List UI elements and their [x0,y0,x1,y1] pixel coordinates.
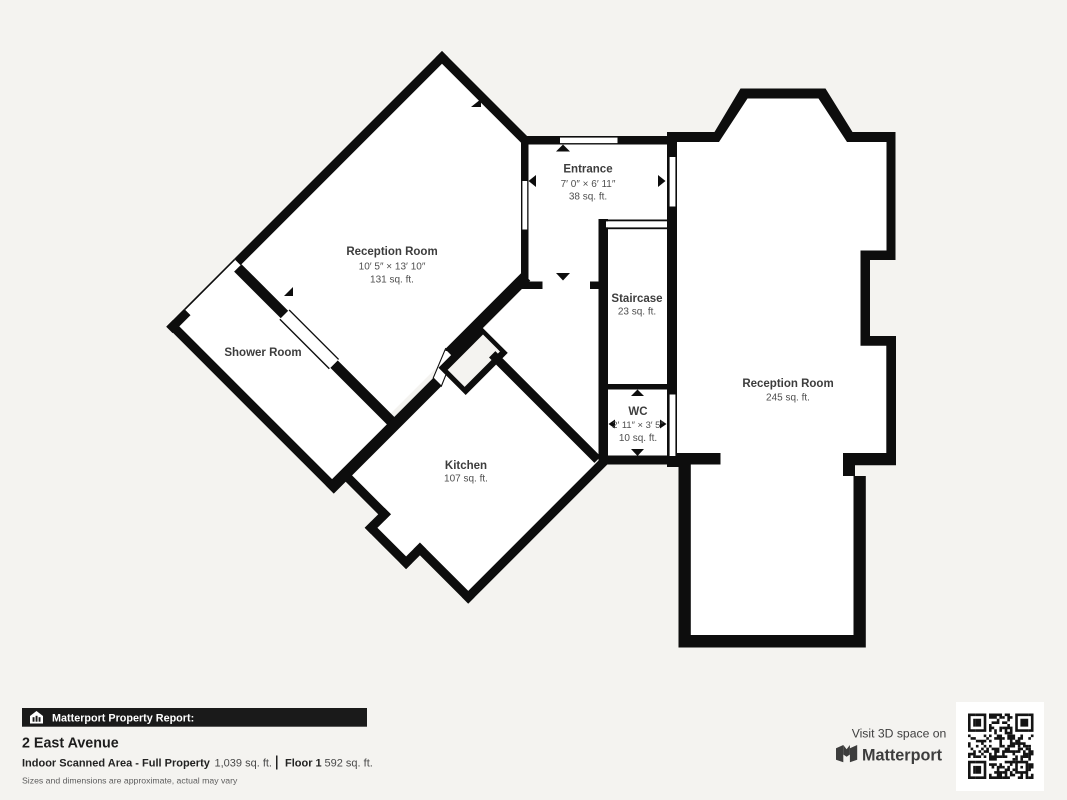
svg-text:Matterport Property Report:: Matterport Property Report: [52,713,194,725]
svg-text:1,039 sq. ft.: 1,039 sq. ft. [215,758,272,770]
svg-text:Staircase: Staircase [611,293,662,305]
svg-text:Sizes and dimensions are appro: Sizes and dimensions are approximate, ac… [22,776,238,786]
svg-text:10′ 5″ × 13′ 10″: 10′ 5″ × 13′ 10″ [359,262,426,273]
svg-text:7′ 0″ × 6′ 11″: 7′ 0″ × 6′ 11″ [561,179,616,190]
svg-text:Shower Room: Shower Room [224,347,301,359]
svg-text:245 sq. ft.: 245 sq. ft. [766,393,810,404]
svg-text:10 sq. ft.: 10 sq. ft. [619,433,657,444]
svg-text:Floor 1: Floor 1 [285,758,322,770]
svg-text:Entrance: Entrance [563,164,612,176]
svg-text:WC: WC [628,406,647,418]
svg-text:131 sq. ft.: 131 sq. ft. [370,275,414,286]
svg-text:592 sq. ft.: 592 sq. ft. [325,758,373,770]
svg-text:2′ 11″ × 3′ 5″: 2′ 11″ × 3′ 5″ [612,419,664,430]
svg-text:2 East Avenue: 2 East Avenue [22,736,119,752]
svg-text:Visit 3D space on: Visit 3D space on [852,727,947,741]
svg-text:Reception Room: Reception Room [346,246,437,258]
svg-text:23 sq. ft.: 23 sq. ft. [618,307,656,318]
svg-text:Kitchen: Kitchen [445,460,487,472]
svg-text:38 sq. ft.: 38 sq. ft. [569,192,607,203]
svg-text:Reception Room: Reception Room [742,378,833,390]
svg-text:Matterport: Matterport [862,747,943,765]
svg-text:Indoor Scanned Area - Full Pro: Indoor Scanned Area - Full Property [22,758,211,770]
svg-text:107 sq. ft.: 107 sq. ft. [444,474,488,485]
